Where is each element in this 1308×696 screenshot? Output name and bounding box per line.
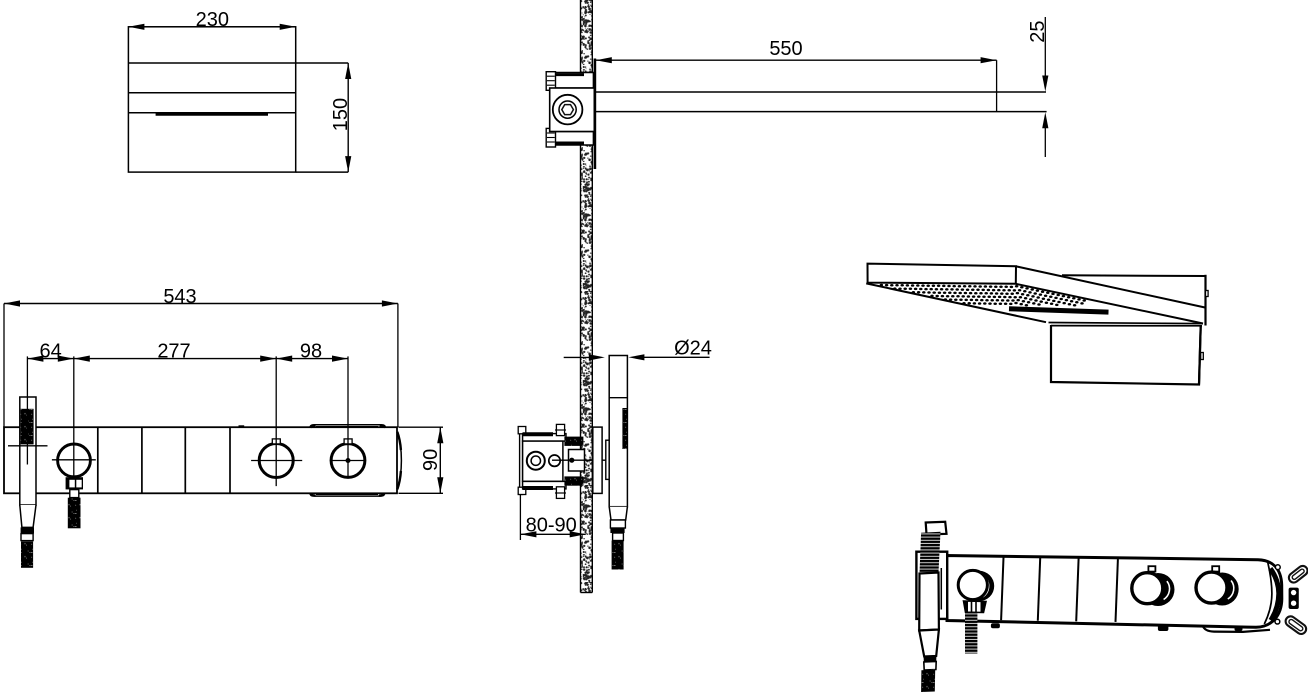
svg-text:277: 277 [157,341,190,363]
svg-text:25: 25 [1027,20,1049,42]
svg-text:Ø24: Ø24 [674,337,712,359]
svg-text:64: 64 [39,341,61,363]
svg-text:90: 90 [420,449,442,471]
svg-text:550: 550 [769,38,802,60]
svg-text:150: 150 [330,98,352,131]
svg-text:543: 543 [163,286,196,308]
svg-text:230: 230 [196,9,229,31]
svg-text:98: 98 [300,341,322,363]
